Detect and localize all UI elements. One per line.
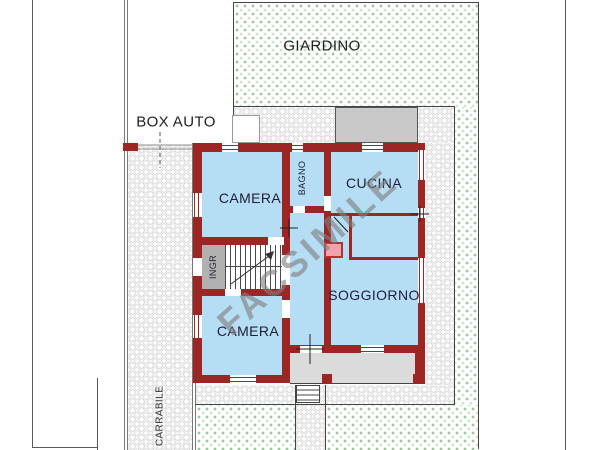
boundary-line-left-lower <box>97 378 98 450</box>
boundary-line-far-right <box>565 0 566 450</box>
boundary-line-bottom-left <box>32 447 97 448</box>
label-bagno: BAGNO <box>297 161 307 196</box>
label-ingr: INGR <box>208 255 218 279</box>
label-soggiorno: SOGGIORNO <box>328 287 420 303</box>
window-soggiorno-south <box>361 345 384 353</box>
window-camera-bottom-west <box>193 315 202 338</box>
label-giardino: GIARDINO <box>283 38 360 55</box>
window-camera-top-west <box>193 193 202 217</box>
paved-right-border <box>454 106 455 405</box>
garden-border-top <box>233 2 478 3</box>
portico-pillar-right <box>413 374 423 384</box>
door-gap-camera-bottom <box>282 300 290 318</box>
door-gap-entrance <box>193 258 202 276</box>
garden-strip-right <box>455 107 478 405</box>
terrace <box>335 107 418 143</box>
portico <box>290 353 415 384</box>
partition-dining-horizontal <box>349 257 418 260</box>
window-camera-bottom-south <box>230 375 256 383</box>
garage-wall-stub <box>123 143 138 151</box>
window-cucina-north <box>362 143 383 152</box>
exterior-steps <box>296 385 320 403</box>
window-camera-top-north <box>222 143 238 152</box>
room-bagno <box>290 152 324 206</box>
garden-area-top <box>233 2 478 107</box>
window-dining-east <box>418 208 425 218</box>
garden-path-border-right <box>325 385 326 450</box>
boundary-line-far-left <box>32 0 33 447</box>
window-bagno-north <box>292 143 303 152</box>
entry-mat <box>232 115 260 143</box>
driveway-border-left-inner <box>127 0 128 450</box>
window-cucina-east <box>418 150 425 180</box>
door-gap-portico <box>300 346 322 353</box>
label-carrabile: CARRABILE <box>155 386 166 446</box>
garden-border-right <box>478 2 479 449</box>
driveway-border-left-outer <box>124 0 125 450</box>
door-gap-camera-top <box>268 237 284 245</box>
portico-pillar-left <box>322 374 332 384</box>
garden-area-bottom-left <box>195 405 295 450</box>
label-camera-top: CAMERA <box>219 190 281 206</box>
label-box-auto: BOX AUTO <box>136 114 216 131</box>
floor-plan: GIARDINO BOX AUTO CARRABILE CAMERA BAGNO… <box>0 0 600 450</box>
paved-band-right <box>425 143 455 385</box>
door-gap-bagno <box>293 206 305 213</box>
garden-area-bottom-right <box>325 405 478 450</box>
